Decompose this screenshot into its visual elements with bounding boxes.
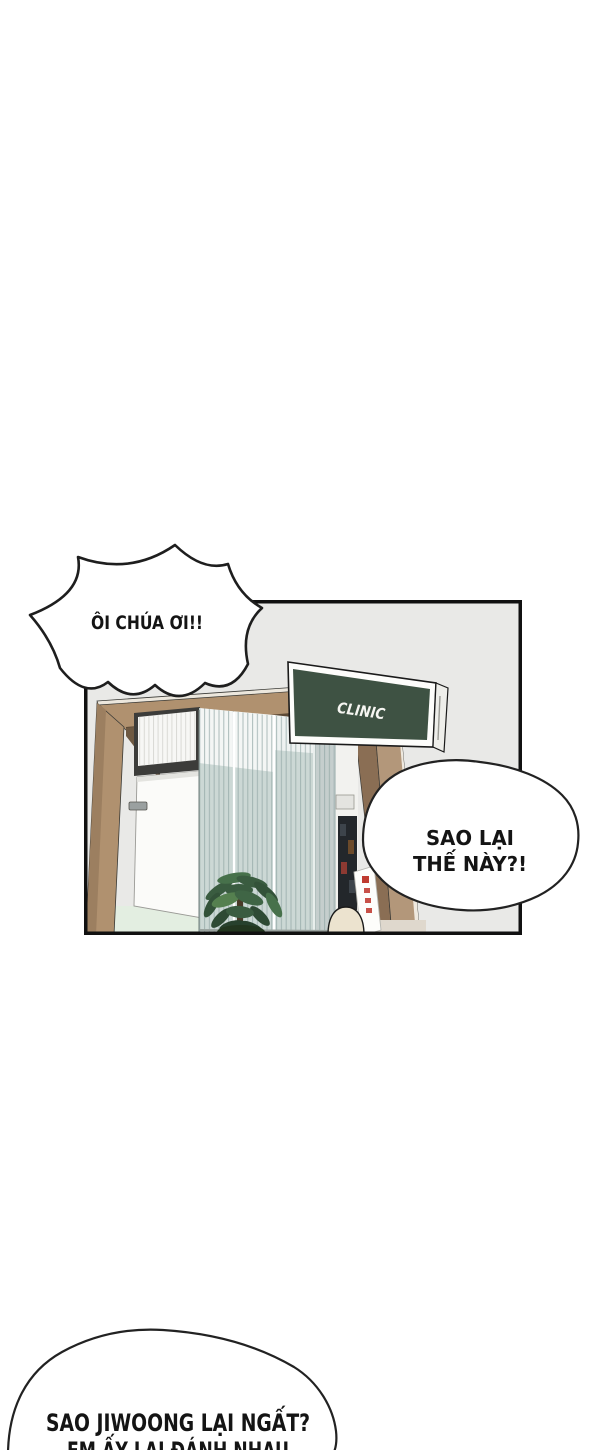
shout-text: ÔI CHÚA ƠI!!: [91, 610, 203, 634]
speech-bubble-question: SAO LẠI THẾ NÀY?!: [363, 760, 578, 910]
speech-bubble-offpanel: SAO JIWOONG LẠI NGẤT? EM ẤY LẠI ĐÁNH NHA…: [8, 1330, 336, 1450]
question-line-2: THẾ NÀY?!: [413, 850, 527, 876]
shelf-unit: [336, 722, 358, 935]
clinic-door: [129, 771, 202, 918]
comic-page: CLINIC SAO LẠI THẾ NÀY?! ÔI CHÚA ƠI!! SA…: [0, 0, 607, 1450]
question-line-1: SAO LẠI: [426, 826, 514, 850]
offpanel-line-1: SAO JIWOONG LẠI NGẤT?: [46, 1404, 310, 1437]
speech-bubble-shout: ÔI CHÚA ƠI!!: [30, 545, 262, 696]
transom-window: [134, 707, 200, 776]
door-handle: [129, 802, 147, 810]
